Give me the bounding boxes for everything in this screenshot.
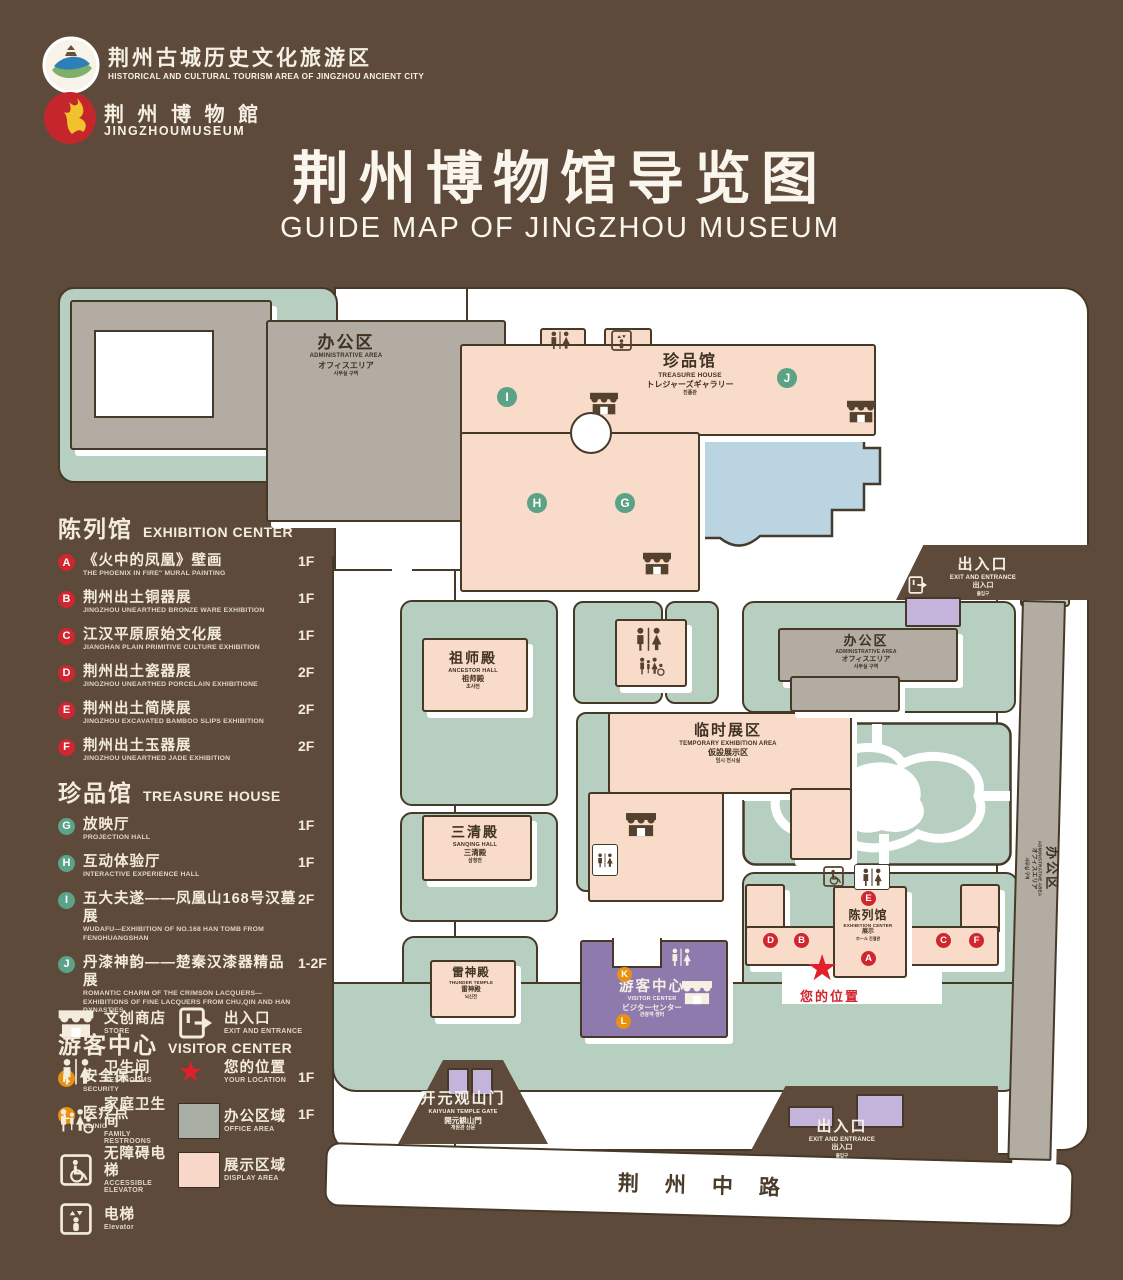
restrooms-icon <box>58 1056 104 1088</box>
legend-row-text: 荆州出土铜器展JINGZHOU UNEARTHED BRONZE WARE EX… <box>83 589 298 616</box>
store-icon <box>590 390 618 416</box>
legend-row-text: 互动体验厅INTERACTIVE EXPERIENCE HALL <box>83 853 298 880</box>
sanqing-hall-label: 三清殿 SANQING HALL 三清殿 삼청전 <box>426 824 524 864</box>
legend-row-H: H互动体验厅INTERACTIVE EXPERIENCE HALL1F <box>58 853 332 880</box>
legend-row-A: A《火中的凤凰》壁画THE PHOENIX IN FIRE" MURAL PAI… <box>58 552 332 579</box>
display-area-swatch <box>178 1152 224 1188</box>
tourism-logo <box>42 36 100 94</box>
legend-item-en: WUDAFU—EXHIBITION OF NO.168 HAN TOMB FRO… <box>83 926 298 944</box>
legend-symbol-accessible-elevator-icon: 无障碍电梯ACCESSIBLE ELEVATOR <box>58 1151 176 1189</box>
treasure-house-label: 珍品馆 TREASURE HOUSE トレジャーズギャラリー 진품관 <box>600 352 780 396</box>
treasure-round-notch <box>570 412 612 454</box>
section-title-cn: 珍品馆 <box>58 774 133 808</box>
symbol-en: RESTROOMS <box>104 1077 152 1084</box>
legend-item-cn: 放映厅 <box>83 816 298 834</box>
legend-badge-D: D <box>58 665 75 682</box>
symbol-en: YOUR LOCATION <box>224 1077 286 1084</box>
your-location-label: 您的位置 <box>800 986 860 1005</box>
legend-item-floor: 1F <box>298 817 332 833</box>
legend-item-cn: 五大夫遂——凤凰山168号汉墓展 <box>83 890 298 926</box>
badge-K: K <box>617 967 632 982</box>
legend-item-cn: 丹漆神韵——楚秦汉漆器精品展 <box>83 954 298 990</box>
section-title-en: TREASURE HOUSE <box>143 788 281 804</box>
symbol-text: 文创商店STORE <box>104 1011 166 1035</box>
symbol-cn: 办公区域 <box>224 1109 286 1126</box>
symbol-cn: 卫生间 <box>104 1060 152 1077</box>
legend-row-G: G放映厅PROJECTION HALL1F <box>58 816 332 843</box>
legend-item-cn: 互动体验厅 <box>83 853 298 871</box>
symbol-en: ACCESSIBLE ELEVATOR <box>104 1180 176 1194</box>
legend-badge-A: A <box>58 554 75 571</box>
symbol-text: 无障碍电梯ACCESSIBLE ELEVATOR <box>104 1146 176 1195</box>
accessible-elevator-icon <box>58 1154 104 1186</box>
exit-entrance-icon <box>908 576 928 594</box>
elevator-icon <box>611 330 632 351</box>
legend-item-en: INTERACTIVE EXPERIENCE HALL <box>83 871 298 880</box>
tourism-logo-title: 荆州古城历史文化旅游区 <box>108 42 372 72</box>
accessible-elevator-icon <box>823 866 844 887</box>
legend-item-cn: 江汉平原原始文化展 <box>83 626 298 644</box>
legend-row-I: I五大夫遂——凤凰山168号汉墓展WUDAFU—EXHIBITION OF NO… <box>58 890 332 944</box>
legend-badge-C: C <box>58 628 75 645</box>
legend-symbol-display-area-swatch: 展示区域DISPLAY AREA <box>178 1151 334 1189</box>
exhibition-center-label: 陈列馆 EXHIBITION CENTER 展示 ホール 진열관 <box>834 908 902 941</box>
visitor-notch <box>612 938 662 968</box>
store-icon <box>58 1007 104 1039</box>
road-label: 荆州中路 <box>592 1166 807 1202</box>
badge-H: H <box>527 493 547 513</box>
store-icon <box>643 550 671 576</box>
symbol-text: 卫生间RESTROOMS <box>104 1060 152 1084</box>
symbol-cn: 展示区域 <box>224 1158 286 1175</box>
section-title-en: EXHIBITION CENTER <box>143 524 293 540</box>
symbol-cn: 电梯 <box>104 1207 135 1224</box>
symbol-text: 出入口EXIT AND ENTRANCE <box>224 1011 302 1035</box>
elevator-icon <box>58 1203 104 1235</box>
legend-badge-H: H <box>58 855 75 872</box>
badge-A: A <box>861 951 876 966</box>
symbol-cn: 出入口 <box>224 1011 302 1028</box>
legend-item-floor: 1F <box>298 553 332 569</box>
family-restroom-icon <box>58 1105 104 1137</box>
page-title: 荆州博物馆导览图 <box>170 133 950 215</box>
temporary-label: 临时展区 TEMPORARY EXHIBITION AREA 仮設展示区 임시 … <box>616 722 840 765</box>
legend-item-en: JIANGHAN PLAIN PRIMITIVE CULTURE EXHIBIT… <box>83 644 298 653</box>
legend-symbol-office-area-swatch: 办公区域OFFICE AREA <box>178 1102 334 1140</box>
legend-item-en: JINGZHOU UNEARTHED PORCELAIN EXHIBITIONE <box>83 681 298 690</box>
legend-symbol-store-icon: 文创商店STORE <box>58 1004 176 1042</box>
legend-symbol-your-location-icon: ★您的位置YOUR LOCATION <box>178 1053 334 1091</box>
symbol-en: EXIT AND ENTRANCE <box>224 1028 302 1035</box>
symbol-text: 办公区域OFFICE AREA <box>224 1109 286 1133</box>
symbol-text: 您的位置YOUR LOCATION <box>224 1060 286 1084</box>
restrooms-icon <box>668 948 694 967</box>
legend-item-floor: 1-2F <box>298 955 332 971</box>
badge-I: I <box>497 387 517 407</box>
legend-item-floor: 1F <box>298 627 332 643</box>
legend-row-F: F荆州出土玉器展JINGZHOU UNEARTHED JADE EXHIBITI… <box>58 737 332 764</box>
museum-logo <box>44 92 96 144</box>
thunder-temple-label: 雷神殿 THUNDER TEMPLE 雷神殿 뇌신전 <box>434 966 508 1000</box>
legend-row-text: 荆州出土简牍展JINGZHOU EXCAVATED BAMBOO SLIPS E… <box>83 700 298 727</box>
symbol-en: OFFICE AREA <box>224 1126 286 1133</box>
legend-symbol-restrooms-icon: 卫生间RESTROOMS <box>58 1053 176 1091</box>
restrooms-icon <box>854 864 890 890</box>
symbol-en: DISPLAY AREA <box>224 1175 286 1182</box>
legend-badge-F: F <box>58 739 75 756</box>
legend-badge-E: E <box>58 702 75 719</box>
legend-item-en: JINGZHOU EXCAVATED BAMBOO SLIPS EXHIBITI… <box>83 718 298 727</box>
badge-B: B <box>794 933 809 948</box>
symbol-cn: 无障碍电梯 <box>104 1146 176 1181</box>
restrooms-icon <box>632 627 665 652</box>
your-location-star: ★ <box>806 950 838 986</box>
store-icon <box>847 398 875 424</box>
legend-item-en: JINGZHOU UNEARTHED JADE EXHIBITION <box>83 755 298 764</box>
badge-F: F <box>969 933 984 948</box>
legend-row-text: 荆州出土瓷器展JINGZHOU UNEARTHED PORCELAIN EXHI… <box>83 663 298 690</box>
legend-item-floor: 2F <box>298 738 332 754</box>
legend-row-text: 荆州出土玉器展JINGZHOU UNEARTHED JADE EXHIBITIO… <box>83 737 298 764</box>
badge-C: C <box>936 933 951 948</box>
legend-section-heading: 珍品馆TREASURE HOUSE <box>58 774 332 808</box>
legend-symbol-exit-entrance-icon: 出入口EXIT AND ENTRANCE <box>178 1004 334 1042</box>
guide-map-poster: 荆州古城历史文化旅游区 HISTORICAL AND CULTURAL TOUR… <box>0 0 1123 1280</box>
legend-row-E: E荆州出土简牍展JINGZHOU EXCAVATED BAMBOO SLIPS … <box>58 700 332 727</box>
tourism-logo-subtitle: HISTORICAL AND CULTURAL TOURISM AREA OF … <box>108 72 424 81</box>
legend-item-cn: 荆州出土简牍展 <box>83 700 298 718</box>
badge-L: L <box>616 1014 631 1029</box>
museum-logo-title: 荆 州 博 物 館 <box>104 98 262 127</box>
legend-item-cn: 荆州出土瓷器展 <box>83 663 298 681</box>
legend-item-en: PROJECTION HALL <box>83 834 298 843</box>
se-exit-label: 出入口 EXIT AND ENTRANCE 出入口 출입구 <box>790 1118 894 1159</box>
legend-item-floor: 2F <box>298 701 332 717</box>
legend-row-text: 《火中的凤凰》壁画THE PHOENIX IN FIRE" MURAL PAIN… <box>83 552 298 579</box>
admin-nw-label: 办公区 ADMINISTRATIVE AREA オフィスエリア 사무실 구역 <box>276 332 416 377</box>
legend-badge-J: J <box>58 956 75 973</box>
restrooms-icon <box>592 844 618 876</box>
page-subtitle: GUIDE MAP OF JINGZHOU MUSEUM <box>170 212 950 245</box>
symbol-text: 电梯Elevator <box>104 1207 135 1231</box>
legend-item-cn: 《火中的凤凰》壁画 <box>83 552 298 570</box>
legend-item-en: THE PHOENIX IN FIRE" MURAL PAINTING <box>83 570 298 579</box>
symbol-en: FAMILY RESTROONS <box>104 1131 176 1145</box>
store-icon <box>626 810 656 838</box>
symbol-cn: 家庭卫生间 <box>104 1097 176 1132</box>
legend-item-floor: 1F <box>298 854 332 870</box>
admin-east-label: 办公区 ADMINISTRATIVE AREA オフィスエリア 사무실 구역 <box>791 633 941 671</box>
kaiyuan-gate-label: 开元观山门 KAIYUAN TEMPLE GATE 開元観山門 개원관 산문 <box>398 1090 528 1131</box>
symbol-en: Elevator <box>104 1224 135 1231</box>
exit-entrance-icon <box>178 1007 224 1039</box>
symbol-text: 展示区域DISPLAY AREA <box>224 1158 286 1182</box>
badge-D: D <box>763 933 778 948</box>
legend-badge-G: G <box>58 818 75 835</box>
section-title-cn: 陈列馆 <box>58 510 133 544</box>
ancestor-hall-label: 祖师殿 ANCESTOR HALL 祖师殿 조사전 <box>426 650 520 690</box>
legend-row-text: 江汉平原原始文化展JIANGHAN PLAIN PRIMITIVE CULTUR… <box>83 626 298 653</box>
your-location-icon: ★ <box>178 1058 224 1086</box>
legend-row-text: 放映厅PROJECTION HALL <box>83 816 298 843</box>
legend-item-cn: 荆州出土铜器展 <box>83 589 298 607</box>
legend-item-floor: 2F <box>298 664 332 680</box>
legend-row-B: B荆州出土铜器展JINGZHOU UNEARTHED BRONZE WARE E… <box>58 589 332 616</box>
legend-row-text: 五大夫遂——凤凰山168号汉墓展WUDAFU—EXHIBITION OF NO.… <box>83 890 298 944</box>
legend-badge-B: B <box>58 591 75 608</box>
symbol-cn: 文创商店 <box>104 1011 166 1028</box>
legend-item-cn: 荆州出土玉器展 <box>83 737 298 755</box>
building-admin-east-step <box>790 676 900 712</box>
legend-badge-I: I <box>58 892 75 909</box>
office-area-swatch <box>178 1103 224 1139</box>
legend-symbol-elevator-icon: 电梯Elevator <box>58 1200 176 1238</box>
badge-G: G <box>615 493 635 513</box>
restrooms-icon <box>546 331 574 350</box>
legend-row-D: D荆州出土瓷器展JINGZHOU UNEARTHED PORCELAIN EXH… <box>58 663 332 690</box>
building-temporary-wing <box>790 788 852 860</box>
symbol-text: 家庭卫生间FAMILY RESTROONS <box>104 1097 176 1146</box>
legend-symbols-col2: 出入口EXIT AND ENTRANCE★您的位置YOUR LOCATION办公… <box>178 1004 334 1200</box>
admin-nw-courtyard <box>94 330 214 418</box>
legend-row-C: C江汉平原原始文化展JIANGHAN PLAIN PRIMITIVE CULTU… <box>58 626 332 653</box>
ne-gate <box>905 597 961 627</box>
store-icon <box>682 978 712 1006</box>
symbol-cn: 您的位置 <box>224 1060 286 1077</box>
ne-exit-label: 出入口 EXIT AND ENTRANCE 出入口 출입구 <box>928 556 1038 597</box>
badge-E: E <box>861 891 876 906</box>
legend-symbol-family-restroom-icon: 家庭卫生间FAMILY RESTROONS <box>58 1102 176 1140</box>
symbol-en: STORE <box>104 1028 166 1035</box>
legend-item-en: JINGZHOU UNEARTHED BRONZE WARE EXHIBITIO… <box>83 607 298 616</box>
legend-item-floor: 2F <box>298 891 332 907</box>
badge-J: J <box>777 368 797 388</box>
legend-symbols-col1: 文创商店STORE卫生间RESTROOMS家庭卫生间FAMILY RESTROO… <box>58 1004 176 1249</box>
admin-strip-label: 办公区 ADMINISTRATIVE AREA オフィスエリア 사무실 구역 <box>1024 769 1061 969</box>
family-restroom-icon <box>638 656 665 677</box>
legend-item-floor: 1F <box>298 590 332 606</box>
